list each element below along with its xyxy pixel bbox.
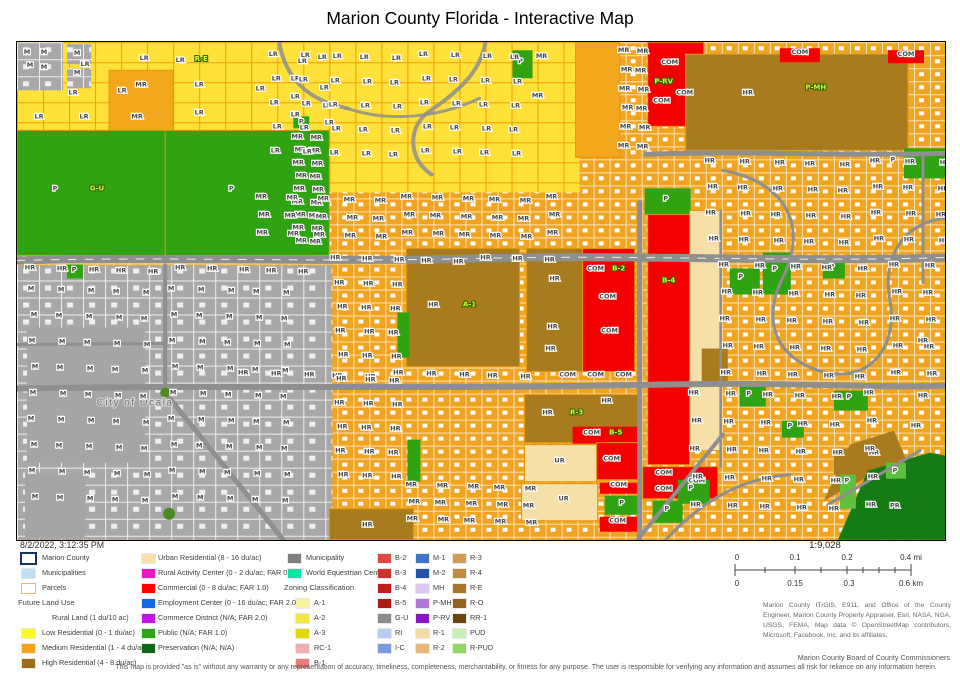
scale-km-2: 0.3 xyxy=(843,579,855,588)
parcel-label: MR xyxy=(489,195,500,203)
parcel-label: HR xyxy=(57,264,67,272)
parcel-label: P xyxy=(663,194,668,202)
parcel-label: LR xyxy=(332,124,341,132)
parcel-label: HR xyxy=(363,400,373,408)
parcel-label: HR xyxy=(691,501,701,509)
legend-item-medium-residential-1-4-du-ac: Medium Residential (1 - 4 du/ac) xyxy=(42,643,147,652)
parcel-label: LR xyxy=(482,124,491,132)
parcel-label: LR xyxy=(483,52,492,60)
parcel-label: HR xyxy=(789,290,799,298)
parcel-label: M xyxy=(200,390,206,398)
parcel-label: HR xyxy=(334,399,344,407)
parcel-label: HR xyxy=(725,474,735,482)
legend-swatch-r-pud xyxy=(453,644,466,653)
parcel-label: HR xyxy=(760,503,770,511)
parcel-label: HR xyxy=(841,212,851,220)
parcel-label: M xyxy=(197,494,203,502)
parcel-label: MR xyxy=(285,211,296,219)
parcel-label: MR xyxy=(375,196,386,204)
parcel-label: LR xyxy=(291,92,300,100)
parcel-label: M xyxy=(85,391,91,399)
parcel-label: M xyxy=(224,339,230,347)
parcel-label: COM xyxy=(559,371,576,379)
parcel-label: M xyxy=(59,468,65,476)
parcel-label: P xyxy=(772,264,777,272)
parcel-label: HR xyxy=(871,208,881,216)
parcel-label: M xyxy=(143,289,149,297)
parcel-label: R-3 xyxy=(570,409,583,417)
legend-swatch-rural-activity-center-0-2-du-ac-far-0-35 xyxy=(142,569,155,578)
parcel-label: MR xyxy=(293,158,304,166)
parcel-label: HR xyxy=(480,253,490,261)
legend-swatch-municipalities xyxy=(22,569,35,578)
parcel-label: HR xyxy=(304,371,314,379)
legend-item-preservation-n-a-n-a: Preservation (N/A; N/A) xyxy=(158,643,234,652)
parcel-label: MR xyxy=(464,517,475,525)
parcel-label: HR xyxy=(925,261,935,269)
legend-swatch-r-e xyxy=(453,584,466,593)
parcel-label: MR xyxy=(310,172,321,180)
parcel-label: HR xyxy=(923,289,933,297)
parcel-label: HR xyxy=(601,397,611,405)
parcel-label: G-U xyxy=(90,184,105,192)
legend-item-a-2: A-2 xyxy=(314,613,325,622)
parcel-label: M xyxy=(281,445,287,453)
parcel-label: HR xyxy=(362,254,372,262)
parcel-label: P xyxy=(845,477,850,485)
parcel-label: LR xyxy=(360,53,369,61)
parcel-label: HR xyxy=(337,303,347,311)
parcel-label: LR xyxy=(195,108,204,116)
parcel-label: HR xyxy=(705,156,715,164)
parcel-label: M xyxy=(172,493,178,501)
legend-swatch-mh xyxy=(416,584,429,593)
parcel-label: LR xyxy=(421,146,430,154)
parcel-label: HR xyxy=(728,502,738,510)
parcel-label: HR xyxy=(549,274,559,282)
parcel-label: HR xyxy=(761,419,771,427)
parcel-label: COM xyxy=(587,264,604,272)
legend-item-marion-county: Marion County xyxy=(42,553,89,562)
parcel-label: HR xyxy=(727,446,737,454)
legend-item-municipalities: Municipalities xyxy=(42,568,86,577)
parcel-label: HR xyxy=(798,420,808,428)
legend-swatch-g-u xyxy=(378,614,391,623)
parcel-label: M xyxy=(171,311,177,319)
legend-swatch-i-c xyxy=(378,644,391,653)
parcel-label: M xyxy=(282,497,288,505)
legend-swatch-pud xyxy=(453,629,466,638)
parcel-label: LR xyxy=(479,100,488,108)
legend-swatch-b-4 xyxy=(378,584,391,593)
parcel-label: M xyxy=(253,418,259,426)
parcel-label: LR xyxy=(390,78,399,86)
parcel-label: HR xyxy=(388,449,398,457)
parcel-label: MR xyxy=(494,484,505,492)
legend-swatch-world-equestrian-center xyxy=(288,569,301,578)
parcel-label: LR xyxy=(273,122,282,130)
parcel-label: M xyxy=(226,313,232,321)
parcel-label: HR xyxy=(723,342,733,350)
parcel-label: HR xyxy=(453,257,463,265)
legend-swatch-r-2 xyxy=(416,644,429,653)
parcel-label: HR xyxy=(791,262,801,270)
legend-item-r-e: R-E xyxy=(470,583,483,592)
parcel-label: HR xyxy=(874,234,884,242)
parcel-label: COM xyxy=(599,293,616,301)
legend-swatch-p-mh xyxy=(416,599,429,608)
parcel-label: P xyxy=(746,390,751,398)
parcel-label: COM xyxy=(583,429,600,437)
parcel-label: HR xyxy=(926,316,936,324)
legend-item-g-u: G-U xyxy=(395,613,408,622)
parcel-label: M xyxy=(172,363,178,371)
parcel-label: LR xyxy=(423,122,432,130)
legend-item-b-2: B-2 xyxy=(395,553,406,562)
parcel-label: M xyxy=(114,340,120,348)
parcel-label: HR xyxy=(724,418,734,426)
legend-swatch-a-1 xyxy=(296,599,309,608)
parcel-label: MR xyxy=(618,141,629,149)
map-attribution: Marion County IT/GIS, E911, and Office o… xyxy=(763,601,951,641)
parcel-label: M xyxy=(28,284,34,292)
parcel-label: M xyxy=(41,48,47,56)
parcel-label: HR xyxy=(389,377,399,385)
parcel-label: MR xyxy=(532,91,543,99)
parcel-label: M xyxy=(27,61,33,69)
parcel-label: HR xyxy=(361,304,371,312)
parcel-label: M xyxy=(141,315,147,323)
parcel-label: M xyxy=(29,337,35,345)
legend-heading-future-land-use: Future Land Use xyxy=(18,598,75,607)
parcel-label: MR xyxy=(401,192,412,200)
parcel-label: MR xyxy=(432,193,443,201)
parcel-label: COM xyxy=(603,455,620,463)
legend-item-world-equestrian-center: World Equestrian Center xyxy=(306,568,386,577)
parcel-label: HR xyxy=(721,369,731,377)
parcel-label: HR xyxy=(763,391,773,399)
legend-swatch-high-residential-4-8-du-ac xyxy=(22,659,35,668)
parcel-label: HR xyxy=(753,289,763,297)
parcel-label: MR xyxy=(495,518,506,526)
parcel-label: MR xyxy=(621,65,632,73)
legend-item-b-5: B-5 xyxy=(395,598,406,607)
parcel-label: LR xyxy=(303,147,312,155)
parcel-label: HR xyxy=(148,267,158,275)
parcel-label: MR xyxy=(135,80,146,88)
parcel-label: HR xyxy=(788,371,798,379)
parcel-label: HR xyxy=(89,265,99,273)
legend-swatch-p-rv xyxy=(416,614,429,623)
parcel-label: HR xyxy=(741,209,751,217)
legend-item-ri: RI xyxy=(395,628,402,637)
parcel-label: MR xyxy=(523,502,534,510)
parcel-label: COM xyxy=(601,327,618,335)
parcel-label: M xyxy=(114,470,120,478)
parcel-label: MR xyxy=(468,483,479,491)
parcel-label: LR xyxy=(195,80,204,88)
parcel-label: HR xyxy=(905,157,915,165)
parcel-label: P xyxy=(664,505,669,513)
parcel-label: LR xyxy=(269,50,278,58)
parcel-label: MR xyxy=(637,47,648,55)
parcel-label: M xyxy=(86,443,92,451)
parcel-label: HR xyxy=(722,288,732,296)
interactive-map[interactable]: MMMMMMLRLRLRLRLRLRLRLRLRLRR-EMRMRLRLRLRL… xyxy=(16,41,946,541)
parcel-label: HR xyxy=(858,264,868,272)
parcel-label: LR xyxy=(256,84,265,92)
legend-item-rural-land-1-du-10-ac: Rural Land (1 du/10 ac) xyxy=(52,613,129,622)
parcel-label: HR xyxy=(689,389,699,397)
parcel-label: HR xyxy=(873,182,883,190)
parcel-label: COM xyxy=(655,485,672,493)
parcel-label: M xyxy=(199,468,205,476)
scale-ratio: 1:9,028 xyxy=(809,540,841,551)
parcel-label: HR xyxy=(175,263,185,271)
parcel-label: MR xyxy=(466,500,477,508)
parcel-label: MR xyxy=(259,210,270,218)
parcel-label: HR xyxy=(903,183,913,191)
parcel-label: HR xyxy=(239,265,249,273)
parcel-label: P xyxy=(619,499,624,507)
parcel-label: M xyxy=(252,366,258,374)
parcel-label: UR xyxy=(554,457,564,465)
legend-swatch-low-residential-0-1-du-ac xyxy=(22,629,35,638)
parcel-label: LR xyxy=(422,74,431,82)
legend-swatch-a-3 xyxy=(296,629,309,638)
parcel-label: B-2 xyxy=(612,264,625,272)
parcel-label: MR xyxy=(518,214,529,222)
parcel-label: HR xyxy=(796,448,806,456)
parcel-label: P-MH xyxy=(805,83,826,91)
parcel-label: HR xyxy=(773,184,783,192)
parcel-label: M xyxy=(56,442,62,450)
parcel-label: HR xyxy=(363,279,373,287)
parcel-label: LR xyxy=(481,76,490,84)
parcel-label: HR xyxy=(709,234,719,242)
parcel-label: MR xyxy=(547,228,558,236)
parcel-label: COM xyxy=(898,50,915,58)
parcel-label: M xyxy=(84,469,90,477)
parcel-label: P xyxy=(891,155,896,163)
parcel-label: M xyxy=(113,288,119,296)
parcel-label: LR xyxy=(272,74,281,82)
parcel-label: MR xyxy=(313,185,324,193)
parcel-label: HR xyxy=(520,373,530,381)
parcel-label: MR xyxy=(256,192,267,200)
parcel-label: MR xyxy=(618,46,629,54)
parcel-label: HR xyxy=(838,186,848,194)
parcel-label: M xyxy=(197,364,203,372)
legend-item-low-residential-0-1-du-ac: Low Residential (0 - 1 du/ac) xyxy=(42,628,135,637)
parcel-label: HR xyxy=(365,376,375,384)
parcel-label: M xyxy=(255,392,261,400)
parcel-label: M xyxy=(253,288,259,296)
scale-bar: 1:9,028 0 0.1 0.2 0.4 mi 0 0.15 0.3 0.6 … xyxy=(725,538,955,593)
parcel-label: HR xyxy=(794,476,804,484)
parcel-label: HR xyxy=(362,521,372,529)
parcel-label: HR xyxy=(787,317,797,325)
parcel-label: HR xyxy=(740,157,750,165)
parcel-label: HR xyxy=(361,424,371,432)
legend-swatch-m-1 xyxy=(416,554,429,563)
parcel-label: HR xyxy=(840,160,850,168)
parcel-label: M xyxy=(254,470,260,478)
legend-item-mh: MH xyxy=(433,583,444,592)
legend-swatch-preservation-n-a-n-a xyxy=(142,644,155,653)
legend-item-p-rv: P-RV xyxy=(433,613,450,622)
parcel-label: M xyxy=(170,389,176,397)
parcel-label: MR xyxy=(409,498,420,506)
parcel-label: HR xyxy=(918,392,928,400)
legend-swatch-employment-center-0-16-du-ac-far-2-0 xyxy=(142,599,155,608)
parcel-label: LR xyxy=(419,50,428,58)
parcel-label: MR xyxy=(430,211,441,219)
parcel-label: HR xyxy=(706,208,716,216)
disclaimer: This map is provided "as is" without any… xyxy=(100,664,952,671)
parcel-label: MR xyxy=(521,232,532,240)
parcel-label: LR xyxy=(68,88,77,96)
parcel-label: HR xyxy=(690,445,700,453)
parcel-label: HR xyxy=(938,184,946,192)
parcel-label: LR xyxy=(450,123,459,131)
parcel-label: MR xyxy=(407,515,418,523)
scale-km-0: 0 xyxy=(735,579,740,588)
parcel-label: MR xyxy=(345,231,356,239)
parcel-label: LR xyxy=(329,100,338,108)
legend-item-r-1: R-1 xyxy=(433,628,445,637)
parcel-label: M xyxy=(171,441,177,449)
legend-item-municipality: Municipality xyxy=(306,553,344,562)
parcel-label: MR xyxy=(344,195,355,203)
parcel-label: MR xyxy=(314,230,325,238)
parcel-label: MR xyxy=(406,481,417,489)
parcel-label: HR xyxy=(893,342,903,350)
parcel-label: MR xyxy=(347,213,358,221)
parcel-label: HR xyxy=(790,344,800,352)
legend-swatch-municipality xyxy=(288,554,301,563)
parcel-label: HR xyxy=(542,409,552,417)
legend-swatch-r-3 xyxy=(453,554,466,563)
parcel-label: HR xyxy=(824,372,834,380)
parcel-label: M xyxy=(140,393,146,401)
parcel-label: M xyxy=(284,341,290,349)
parcel-label: MR xyxy=(520,196,531,204)
parcel-label: M xyxy=(144,341,150,349)
parcel-label: MR xyxy=(316,212,327,220)
parcel-label: HR xyxy=(392,401,402,409)
parcel-label: HR xyxy=(757,370,767,378)
parcel-label: HR xyxy=(692,417,702,425)
parcel-label: HR xyxy=(889,260,899,268)
parcel-label: M xyxy=(74,68,80,76)
parcel-label: M xyxy=(31,311,37,319)
parcel-label: MR xyxy=(639,123,650,131)
parcel-label: LR xyxy=(449,75,458,83)
parcel-label: HR xyxy=(335,447,345,455)
parcel-label: LR xyxy=(389,150,398,158)
parcel-label: HR xyxy=(821,345,831,353)
legend-item-b-3: B-3 xyxy=(395,568,406,577)
parcel-label: HR xyxy=(775,158,785,166)
parcel-label: HR xyxy=(904,235,914,243)
parcel-label: LR xyxy=(318,53,327,61)
parcel-label: HR xyxy=(939,236,946,244)
parcel-label: P xyxy=(72,265,77,273)
legend-swatch-r-o xyxy=(453,599,466,608)
parcel-label: MR xyxy=(312,159,323,167)
parcel-label: M xyxy=(32,363,38,371)
parcel-label: M xyxy=(28,415,34,423)
parcel-label: COM xyxy=(615,371,632,379)
parcel-label: LR xyxy=(299,75,308,83)
parcel-label: HR xyxy=(940,158,946,166)
parcel-label: HR xyxy=(362,472,372,480)
parcel-label: MR xyxy=(294,184,305,192)
parcel-label: COM xyxy=(661,58,678,66)
legend-item-public-n-a-far-1-0: Public (N/A; FAR 1.0) xyxy=(158,628,227,637)
parcel-label: HR xyxy=(116,266,126,274)
parcel-label: MR xyxy=(619,84,630,92)
parcel-label: HR xyxy=(839,238,849,246)
parcel-label: M xyxy=(115,392,121,400)
parcel-label: LR xyxy=(79,112,88,120)
parcel-label: HR xyxy=(891,369,901,377)
legend-swatch-b-3 xyxy=(378,569,391,578)
parcel-label: HR xyxy=(726,390,736,398)
parcel-label: HR xyxy=(771,210,781,218)
parcel-label: HR xyxy=(364,328,374,336)
parcel-label: HR xyxy=(298,267,308,275)
parcel-label: MR xyxy=(459,230,470,238)
parcel-label: HR xyxy=(774,236,784,244)
parcel-label: LR xyxy=(333,52,342,60)
parcel-label: M xyxy=(74,49,80,57)
parcel-label: M xyxy=(284,471,290,479)
parcel-label: M xyxy=(228,417,234,425)
parcel-label: LR xyxy=(510,53,519,61)
legend-item-parcels: Parcels xyxy=(42,583,66,592)
parcel-label: M xyxy=(87,495,93,503)
board-of-commissioners: Marion County Board of County Commission… xyxy=(798,653,950,662)
parcel-label: MR xyxy=(288,229,299,237)
legend-swatch-a-2 xyxy=(296,614,309,623)
parcel-label: M xyxy=(226,443,232,451)
legend-swatch-rc-1 xyxy=(296,644,309,653)
parcel-label: M xyxy=(112,366,118,374)
parcel-label: HR xyxy=(829,505,839,513)
parcel-label: MR xyxy=(536,52,547,60)
parcel-label: HR xyxy=(393,369,403,377)
parcel-label: LR xyxy=(330,148,339,156)
parcel-label: MR xyxy=(638,85,649,93)
scale-mi-3: 0.4 mi xyxy=(900,553,922,562)
parcel-label: HR xyxy=(868,473,878,481)
legend-item-a-3: A-3 xyxy=(314,628,325,637)
parcel-label: HR xyxy=(855,373,865,381)
parcel-label: M xyxy=(60,390,66,398)
parcel-label: MR xyxy=(620,122,631,130)
parcel-label: HR xyxy=(25,263,35,271)
legend-item-a-1: A-1 xyxy=(314,598,325,607)
parcel-label: HR xyxy=(392,280,402,288)
parcel-label: HR xyxy=(720,315,730,323)
parcel-label: HR xyxy=(890,315,900,323)
parcel-label: HR xyxy=(238,369,248,377)
parcel-label: HR xyxy=(805,159,815,167)
parcel-label: LR xyxy=(80,60,89,68)
parcel-label: HR xyxy=(738,183,748,191)
